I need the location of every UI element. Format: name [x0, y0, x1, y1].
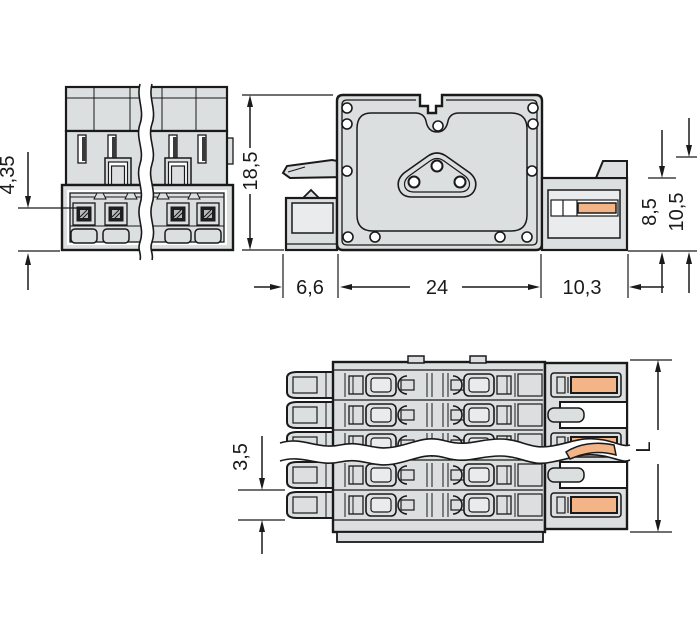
dim-rear-depth: 10,3 — [563, 251, 697, 299]
dim-label-rear-depth: 10,3 — [563, 277, 602, 299]
dim-label-front-depth: 6,6 — [296, 277, 324, 299]
dim-label-overall-length: L — [633, 441, 655, 452]
side-view: 6,6 24 10,3 8,5 — [254, 95, 697, 299]
front-break-line — [139, 84, 154, 260]
dim-label-contact-offset: 4,35 — [0, 156, 19, 195]
side-contact-strip — [578, 203, 616, 213]
dim-front-depth: 6,6 — [254, 254, 338, 299]
top-bottom-rim — [337, 532, 543, 542]
connector-technical-drawing: 4,35 18,5 — [0, 0, 698, 638]
dim-flange-width: 24 — [340, 254, 541, 299]
dim-label-height: 18,5 — [240, 152, 262, 191]
dim-overall-height: 10,5 — [666, 118, 697, 293]
dim-pole-pitch: 3,5 — [230, 436, 285, 554]
dim-label-flange-width: 24 — [426, 277, 448, 299]
top-view: 3,5 L — [230, 356, 672, 554]
latch-bump — [303, 190, 319, 198]
dim-label-pole-pitch: 3,5 — [230, 443, 252, 471]
dim-overall-length: L — [630, 360, 672, 532]
rear-latch-bump — [596, 161, 627, 178]
dim-label-overall-height: 10,5 — [666, 193, 688, 232]
technical-drawing-page: 4,35 18,5 — [0, 0, 698, 638]
dim-label-body-height: 8,5 — [639, 198, 661, 226]
